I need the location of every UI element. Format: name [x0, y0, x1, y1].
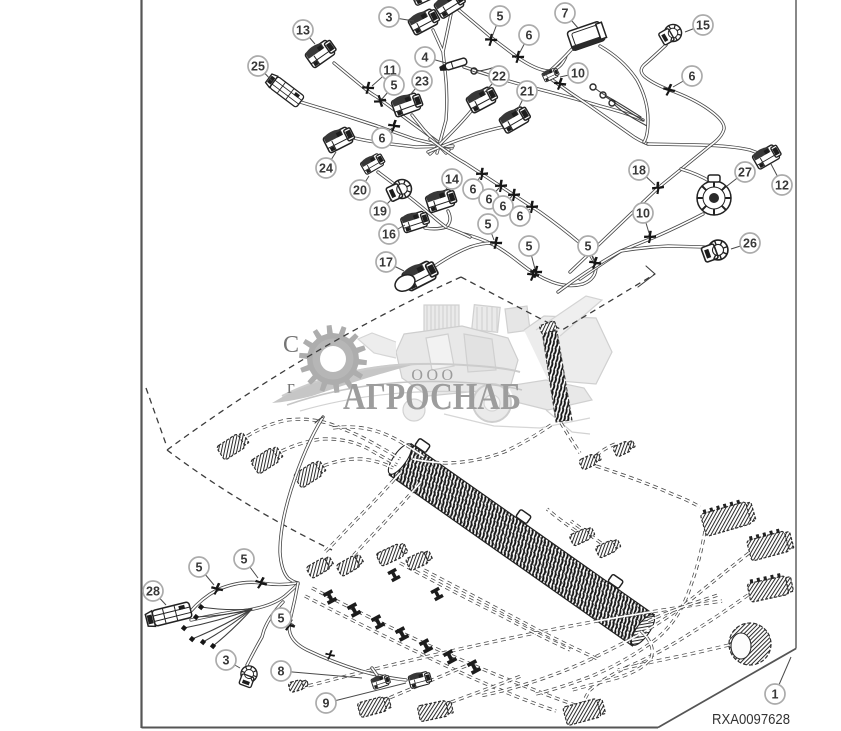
- svg-text:6: 6: [470, 182, 477, 196]
- svg-text:6: 6: [689, 69, 696, 83]
- svg-text:20: 20: [353, 183, 367, 197]
- svg-text:1: 1: [772, 687, 779, 701]
- svg-text:26: 26: [743, 236, 757, 250]
- svg-text:5: 5: [485, 217, 492, 231]
- svg-text:16: 16: [382, 227, 396, 241]
- svg-text:23: 23: [415, 74, 429, 88]
- svg-text:3: 3: [386, 10, 393, 24]
- svg-text:15: 15: [696, 18, 710, 32]
- svg-text:г: г: [287, 377, 295, 398]
- svg-text:5: 5: [278, 611, 285, 625]
- svg-text:5: 5: [497, 9, 504, 23]
- svg-text:8: 8: [278, 664, 285, 678]
- svg-text:17: 17: [379, 255, 393, 269]
- svg-text:АГРОСНАБ: АГРОСНАБ: [343, 376, 521, 418]
- svg-text:12: 12: [775, 178, 789, 192]
- svg-text:5: 5: [585, 239, 592, 253]
- svg-text:5: 5: [196, 560, 203, 574]
- svg-text:25: 25: [251, 59, 265, 73]
- svg-text:6: 6: [526, 28, 533, 42]
- svg-text:13: 13: [296, 23, 310, 37]
- svg-text:27: 27: [738, 165, 752, 179]
- svg-text:5: 5: [526, 239, 533, 253]
- svg-text:7: 7: [562, 6, 569, 20]
- svg-text:6: 6: [517, 209, 524, 223]
- svg-text:5: 5: [391, 78, 398, 92]
- svg-text:3: 3: [223, 653, 230, 667]
- svg-text:C: C: [283, 332, 299, 358]
- svg-text:14: 14: [445, 172, 459, 186]
- svg-text:6: 6: [500, 199, 507, 213]
- svg-text:22: 22: [492, 69, 506, 83]
- svg-text:RXA0097628: RXA0097628: [712, 712, 790, 728]
- svg-text:10: 10: [636, 206, 650, 220]
- svg-text:24: 24: [319, 161, 333, 175]
- svg-text:5: 5: [241, 552, 248, 566]
- svg-text:6: 6: [379, 131, 386, 145]
- svg-text:28: 28: [146, 584, 160, 598]
- svg-text:18: 18: [632, 163, 646, 177]
- svg-text:21: 21: [520, 84, 534, 98]
- svg-text:9: 9: [323, 696, 330, 710]
- svg-text:10: 10: [571, 66, 585, 80]
- svg-text:4: 4: [422, 50, 429, 64]
- svg-text:6: 6: [486, 192, 493, 206]
- svg-text:19: 19: [373, 204, 387, 218]
